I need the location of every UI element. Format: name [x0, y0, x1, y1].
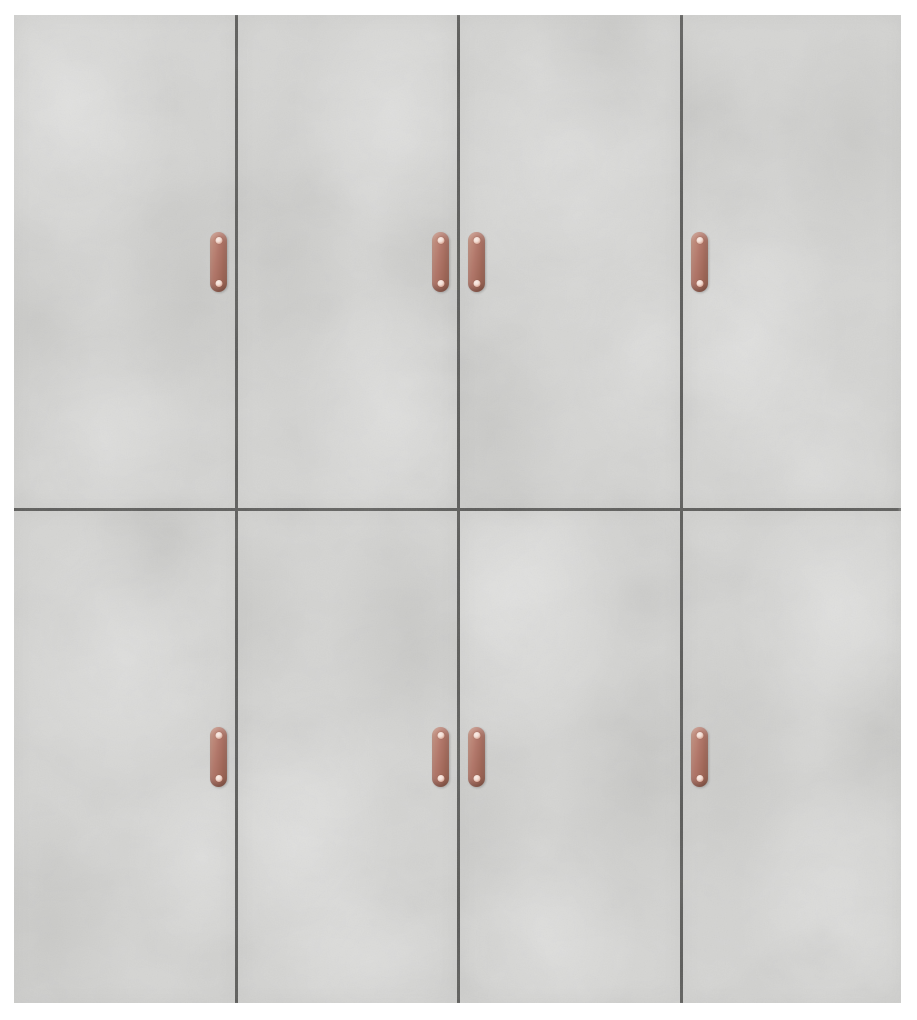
- door-handle: [432, 727, 449, 787]
- cabinet-door: [460, 511, 680, 1003]
- door-handle: [691, 232, 708, 292]
- door-handle: [210, 232, 227, 292]
- cabinet-door: [14, 15, 235, 508]
- cabinet-door: [238, 511, 457, 1003]
- wall-cabinet: [14, 15, 901, 1003]
- door-handle: [432, 232, 449, 292]
- door-handle: [210, 727, 227, 787]
- door-handle: [468, 232, 485, 292]
- cabinet-door: [683, 511, 901, 1003]
- door-handle: [691, 727, 708, 787]
- cabinet-door: [460, 15, 680, 508]
- cabinet-door: [683, 15, 901, 508]
- door-handle: [468, 727, 485, 787]
- product-photo-canvas: [0, 0, 917, 1020]
- cabinet-door: [14, 511, 235, 1003]
- cabinet-door: [238, 15, 457, 508]
